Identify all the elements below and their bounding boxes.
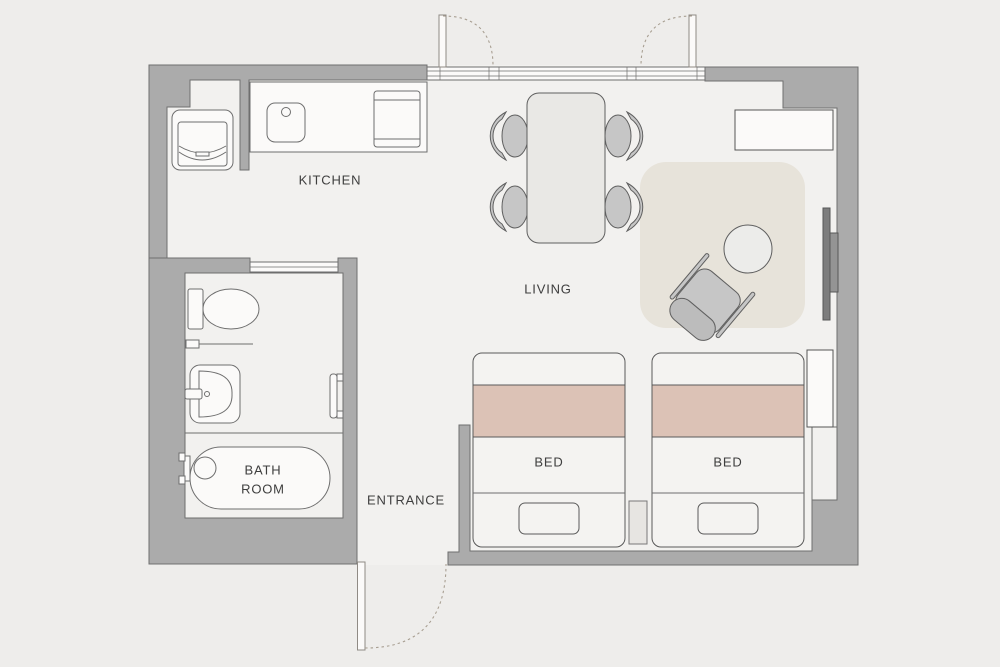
side-table bbox=[724, 225, 772, 273]
floor-plan: KITCHEN LIVING ENTRANCE BATH ROOM BED BE… bbox=[0, 0, 1000, 667]
door-swing-arc bbox=[641, 16, 692, 66]
nightstand bbox=[629, 501, 647, 544]
bed-left bbox=[473, 353, 625, 547]
vanity-faucet bbox=[185, 389, 202, 399]
label-entrance: ENTRANCE bbox=[367, 493, 445, 508]
entrance-door bbox=[358, 562, 447, 650]
balcony-door-right bbox=[641, 15, 696, 67]
label-kitchen: KITCHEN bbox=[299, 173, 362, 188]
tv bbox=[823, 208, 830, 320]
tv-mount bbox=[830, 233, 838, 292]
toilet bbox=[188, 289, 259, 329]
balcony-door-left bbox=[439, 15, 493, 67]
kitchen-sink bbox=[267, 103, 305, 142]
label-living: LIVING bbox=[524, 282, 571, 297]
bed-blanket bbox=[473, 385, 625, 437]
window-band bbox=[427, 67, 705, 80]
washing-machine bbox=[172, 110, 233, 170]
door-swing-arc bbox=[443, 16, 493, 66]
bed-blanket bbox=[652, 385, 804, 437]
bathroom-sliding-door bbox=[250, 262, 338, 272]
floor-plan-svg: KITCHEN LIVING ENTRANCE BATH ROOM BED BE… bbox=[0, 0, 1000, 667]
stove bbox=[374, 91, 420, 147]
dining-table bbox=[527, 93, 605, 243]
label-bathroom-line1: BATH bbox=[245, 463, 282, 478]
entrance-threshold bbox=[357, 550, 449, 565]
bed-towel bbox=[519, 503, 579, 534]
door-swing-arc bbox=[365, 564, 446, 648]
bed-right bbox=[652, 353, 804, 547]
bedside-shelf bbox=[807, 350, 833, 427]
bed-towel bbox=[698, 503, 758, 534]
bathroom-vanity bbox=[185, 365, 240, 423]
label-bathroom-line2: ROOM bbox=[241, 482, 285, 497]
label-bed-left: BED bbox=[534, 455, 563, 470]
console-shelf bbox=[735, 110, 833, 150]
label-bed-right: BED bbox=[713, 455, 742, 470]
bathtub bbox=[179, 447, 330, 509]
